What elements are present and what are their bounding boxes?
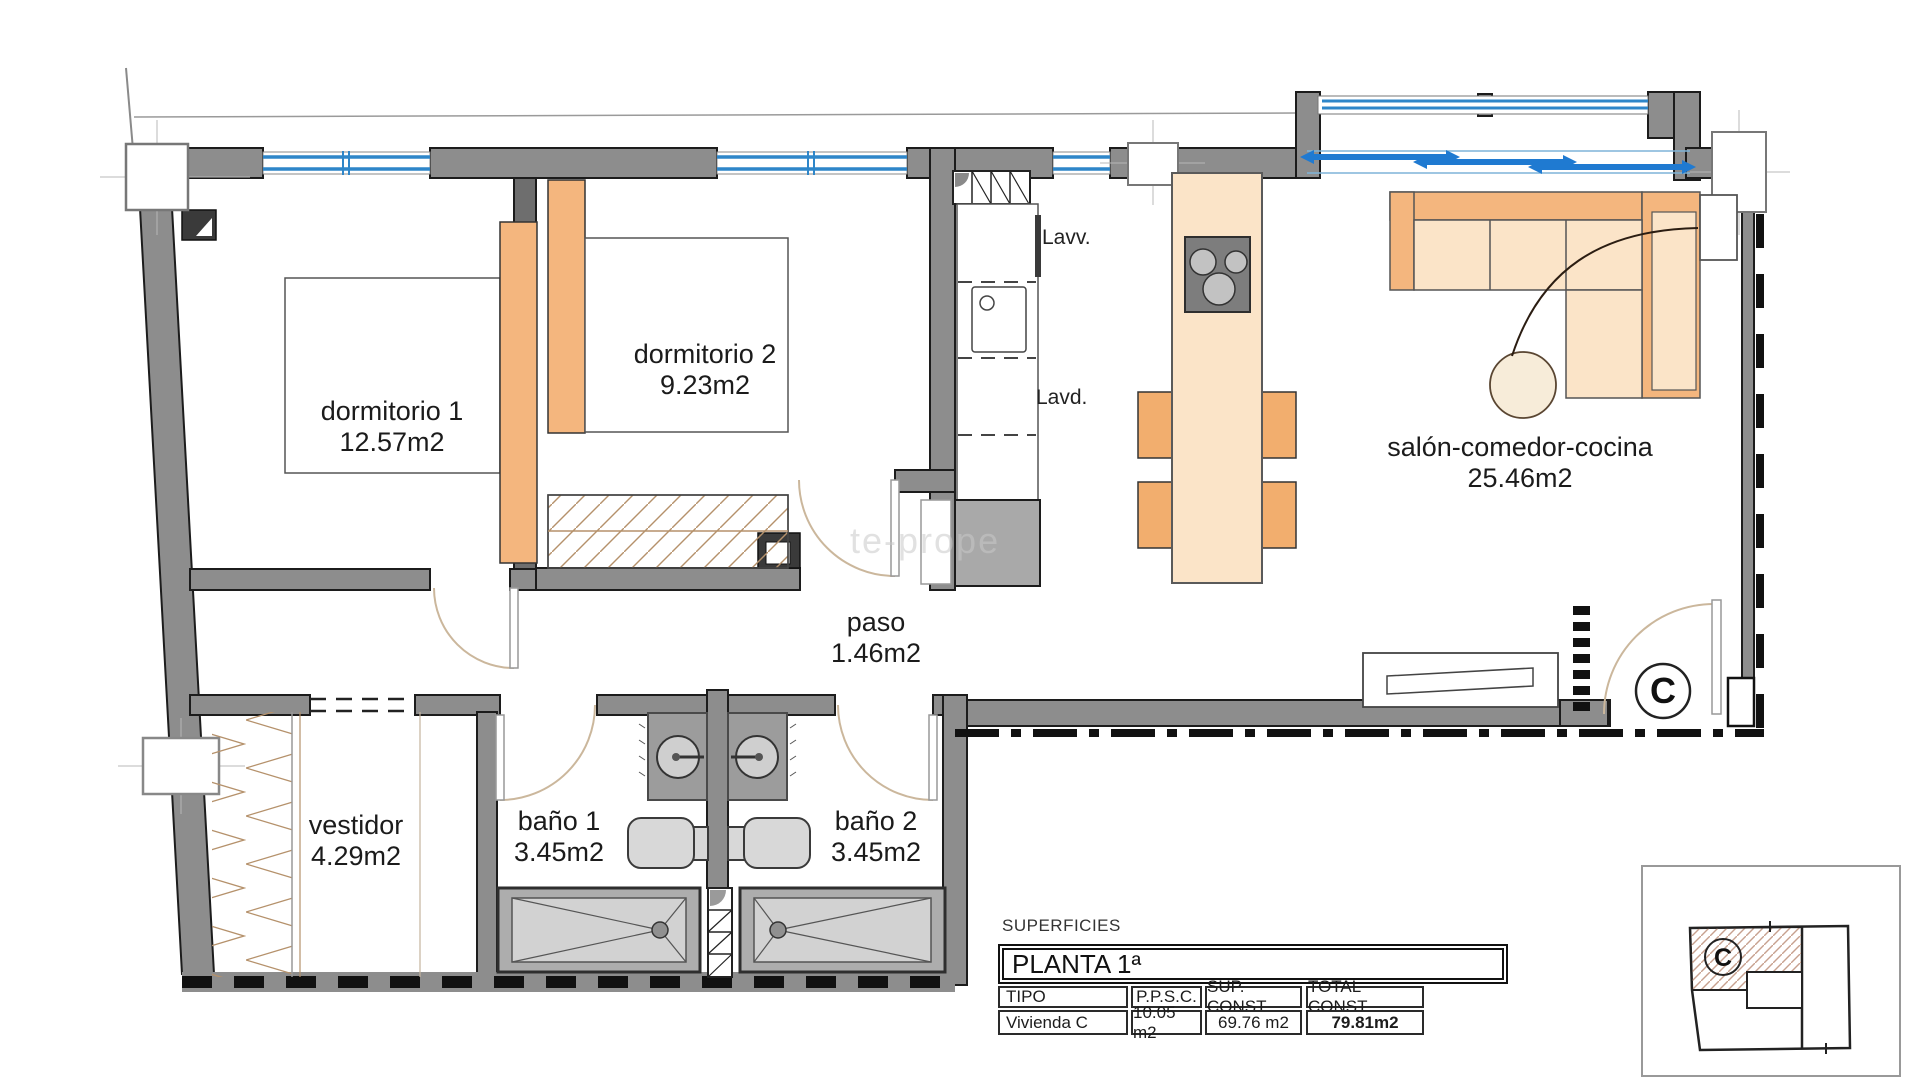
table-cell-total: 79.81m2: [1306, 1010, 1424, 1035]
entry-label-text: C: [1650, 670, 1676, 711]
door-bano2: [838, 705, 937, 800]
room-area: 12.57m2: [252, 427, 532, 458]
hob-icon: [1185, 237, 1250, 312]
bed-dorm2: [585, 238, 788, 432]
shaft-between-showers: [708, 888, 732, 977]
chair-icon: [1138, 482, 1172, 548]
window-dorm2: [717, 151, 907, 175]
sliding-door-terrace: [1300, 150, 1696, 174]
room-label-paso: paso 1.46m2: [776, 607, 976, 670]
room-area: 4.29m2: [246, 841, 466, 872]
room-area: 9.23m2: [565, 370, 845, 401]
room-area: 1.46m2: [776, 638, 976, 669]
coffee-table: [1490, 352, 1556, 418]
door-dorm1: [434, 588, 518, 668]
chair-icon: [1262, 392, 1296, 458]
entry-label-circle: C: [1636, 664, 1690, 718]
drain-icon: [770, 922, 786, 938]
table-cell-sup: 69.76 m2: [1205, 1010, 1302, 1035]
door-bano1: [496, 705, 595, 800]
table-header-sup-const: SUP. CONST.: [1205, 986, 1302, 1008]
room-name: dormitorio 1: [252, 396, 532, 427]
vanity-bano2: [728, 713, 796, 800]
room-area: 25.46m2: [1310, 463, 1730, 494]
table-cell-ppsc: 10.05 m2: [1131, 1010, 1202, 1035]
chair-icon: [1262, 482, 1296, 548]
room-label-dormitorio-1: dormitorio 1 12.57m2: [252, 396, 532, 459]
closet-dorm2: [548, 495, 788, 568]
terrace-glazing: [1318, 96, 1648, 114]
washing-machine-icon: [972, 287, 1026, 352]
label-lavadora: Lavd.: [1036, 386, 1087, 410]
watermark: te-prope: [850, 520, 1000, 562]
eave-line: [126, 68, 1296, 208]
room-name: vestidor: [246, 810, 466, 841]
kitchen-island: [1138, 173, 1296, 583]
room-label-salon: salón-comedor-cocina 25.46m2: [1310, 432, 1730, 495]
shower-bano1: [498, 888, 700, 972]
room-name: salón-comedor-cocina: [1310, 432, 1730, 463]
label-lavavajillas: Lavv.: [1042, 226, 1091, 250]
wardrobe-dorm1: [500, 222, 537, 563]
vanity-bano1: [639, 713, 707, 800]
floor-title: PLANTA 1ª: [1002, 948, 1504, 980]
floor-plan-page: C: [0, 0, 1920, 1080]
tv-sideboard: [1363, 653, 1558, 707]
room-name: baño 2: [776, 806, 976, 837]
room-label-vestidor: vestidor 4.29m2: [246, 810, 466, 873]
shower-bano2: [740, 888, 945, 972]
corner-pillar-top-left: [100, 120, 250, 235]
room-name: baño 1: [459, 806, 659, 837]
chair-icon: [1138, 392, 1172, 458]
room-label-bano-1: baño 1 3.45m2: [459, 806, 659, 869]
table-header-tipo: TIPO: [998, 986, 1128, 1008]
table-cell-tipo: Vivienda C: [998, 1010, 1128, 1035]
room-area: 3.45m2: [459, 837, 659, 868]
drain-icon: [652, 922, 668, 938]
room-label-dormitorio-2: dormitorio 2 9.23m2: [565, 339, 845, 402]
room-area: 3.45m2: [776, 837, 976, 868]
room-name: paso: [776, 607, 976, 638]
radiator-dashes: [1573, 606, 1590, 711]
keyplan-label-text: C: [1714, 944, 1732, 972]
room-name: dormitorio 2: [565, 339, 845, 370]
window-dorm1: [263, 151, 430, 175]
keyplan: C: [1642, 866, 1900, 1076]
table-header-total-const: TOTAL CONST.: [1306, 986, 1424, 1008]
surfaces-title: SUPERFICIES: [1002, 916, 1121, 936]
room-label-bano-2: baño 2 3.45m2: [776, 806, 976, 869]
